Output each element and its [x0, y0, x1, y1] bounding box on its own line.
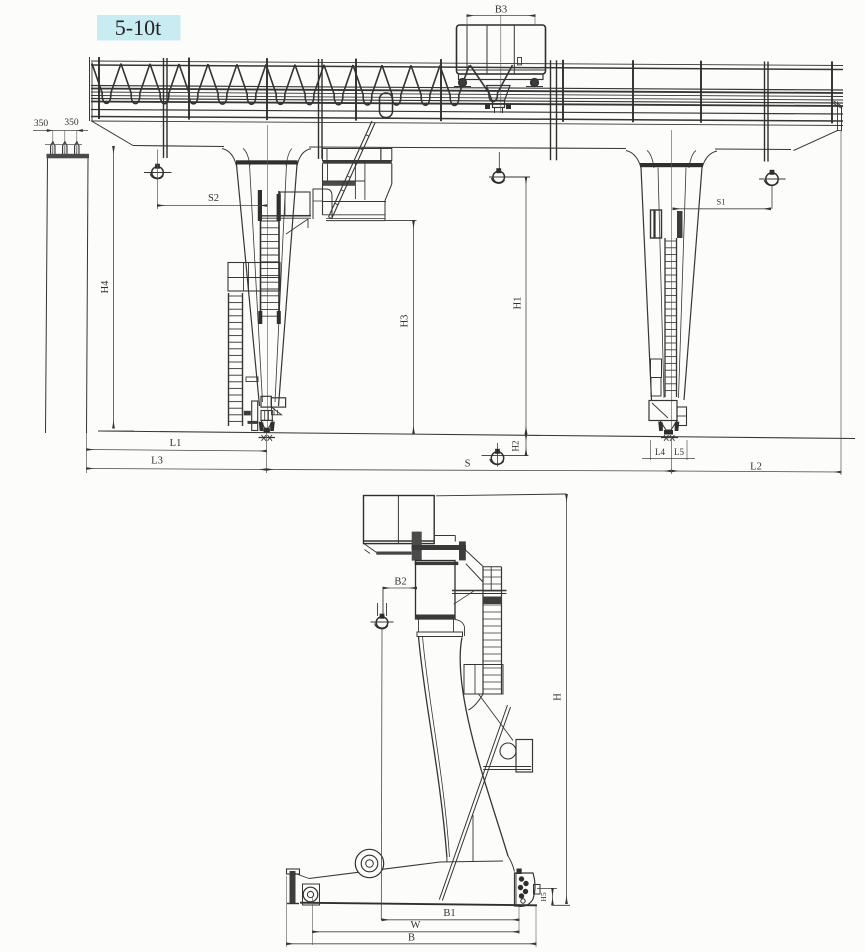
svg-text:L3: L3: [151, 456, 163, 467]
svg-text:H: H: [553, 693, 564, 701]
svg-text:H4: H4: [100, 280, 111, 294]
svg-text:H5: H5: [539, 892, 548, 901]
svg-text:W: W: [411, 920, 421, 931]
svg-text:L1: L1: [170, 438, 182, 449]
svg-text:350: 350: [34, 119, 49, 129]
svg-text:S: S: [465, 459, 471, 470]
svg-text:H1: H1: [513, 297, 524, 310]
svg-text:B2: B2: [394, 577, 406, 588]
svg-text:350: 350: [64, 118, 79, 128]
svg-text:L4: L4: [655, 447, 665, 457]
svg-text:B1: B1: [443, 908, 455, 919]
svg-text:L5: L5: [674, 447, 684, 457]
svg-text:H3: H3: [400, 315, 411, 328]
svg-text:B3: B3: [495, 5, 507, 16]
svg-text:B: B: [408, 933, 415, 944]
svg-text:5-10t: 5-10t: [115, 15, 161, 40]
svg-text:L2: L2: [750, 462, 762, 473]
svg-text:S1: S1: [717, 197, 726, 207]
svg-text:H2: H2: [511, 441, 521, 452]
svg-text:S2: S2: [208, 193, 219, 204]
